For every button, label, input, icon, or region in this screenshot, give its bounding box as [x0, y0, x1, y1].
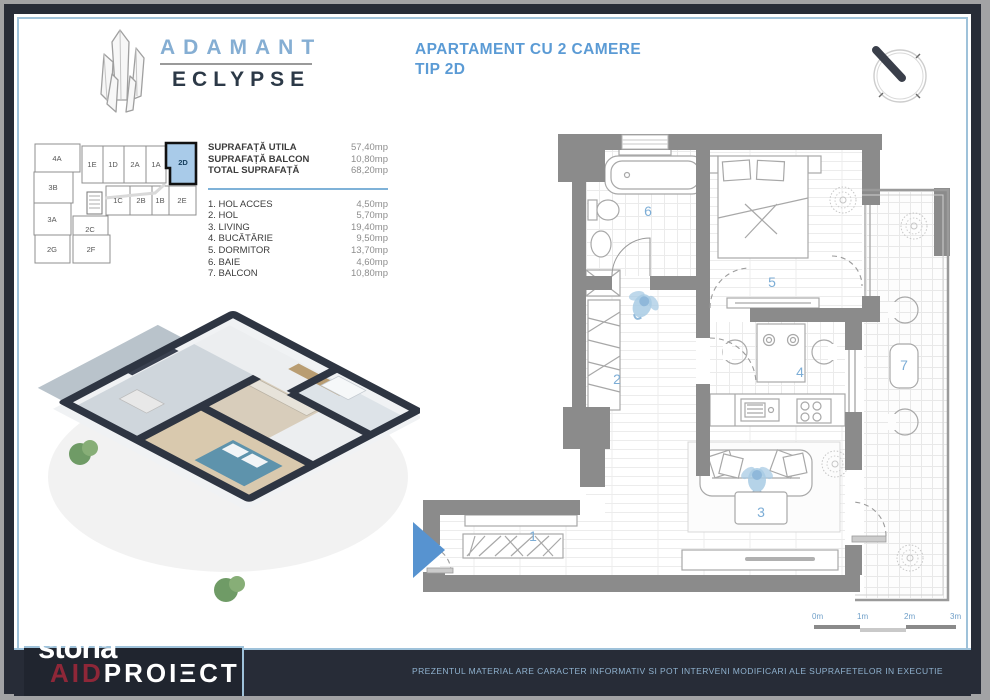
unit-label: 3A: [47, 215, 56, 224]
sofa-pillow: [783, 453, 807, 477]
room-number-hol-acces: 1: [529, 528, 537, 544]
page-title: APARTAMENT CU 2 CAMERE TIP 2D: [415, 40, 641, 80]
unit-label: 2B: [136, 196, 145, 205]
room-label: 4. BUCĂTĂRIE: [208, 233, 273, 245]
room-number-bucatarie: 4: [796, 364, 804, 380]
title-line1: APARTAMENT CU 2 CAMERE: [415, 40, 641, 60]
table-row: 4. BUCĂTĂRIE9,50mp: [208, 233, 388, 245]
table-row: 1. HOL ACCES4,50mp: [208, 199, 388, 211]
unit-label: 1A: [151, 160, 160, 169]
disclaimer-text: PREZENTUL MATERIAL ARE CARACTER INFORMAT…: [412, 666, 943, 676]
scale-label: 2m: [904, 612, 915, 621]
table-row: SUPRAFAȚĂ BALCON10,80mp: [208, 154, 388, 166]
area-label: SUPRAFAȚĂ UTILA: [208, 142, 297, 154]
area-label: SUPRAFAȚĂ BALCON: [208, 154, 309, 166]
unit-label: 1B: [155, 196, 164, 205]
unit-label: 3B: [48, 183, 57, 192]
scale-label: 0m: [812, 612, 823, 621]
room-value: 19,40mp: [351, 222, 388, 234]
scale-bar: 0m 1m 2m 3m: [812, 612, 962, 638]
unit-label: 2E: [177, 196, 186, 205]
north-compass-icon: [866, 38, 932, 108]
room-label: 1. HOL ACCES: [208, 199, 273, 211]
room-number-dormitor: 5: [768, 274, 776, 290]
unit-label: 1C: [113, 196, 123, 205]
areas-table: SUPRAFAȚĂ UTILA57,40mp SUPRAFAȚĂ BALCON1…: [208, 142, 388, 280]
area-value: 10,80mp: [351, 154, 388, 166]
room-value: 5,70mp: [356, 210, 388, 222]
room-value: 9,50mp: [356, 233, 388, 245]
unit-label-highlighted: 2D: [178, 158, 188, 167]
room-value: 4,50mp: [356, 199, 388, 211]
room-number-hol: 2: [613, 371, 621, 387]
wardrobe: [588, 300, 620, 410]
brand-divider: [160, 63, 312, 65]
table-row: TOTAL SUPRAFAȚĂ68,20mp: [208, 165, 388, 177]
logo-proiect-text: PROIΞCT: [104, 658, 240, 688]
room-label: 2. HOL: [208, 210, 238, 222]
sink: [591, 231, 611, 257]
pillow: [756, 160, 784, 180]
sofa-pillow: [719, 454, 743, 478]
storia-watermark: storia: [38, 630, 116, 666]
brand-block: ADAMANT ECLYPSE: [160, 36, 322, 92]
footer-bar: AIDPROIΞCT storia PREZENTUL MATERIAL ARE…: [14, 648, 971, 696]
scale-label: 3m: [950, 612, 961, 621]
area-label: TOTAL SUPRAFAȚĂ: [208, 165, 299, 177]
room-value: 4,60mp: [356, 257, 388, 269]
area-value: 57,40mp: [351, 142, 388, 154]
room-number-balcon: 7: [900, 357, 908, 373]
unit-label: 2F: [87, 245, 96, 254]
room-number-living: 3: [757, 504, 765, 520]
table-row: 2. HOL5,70mp: [208, 210, 388, 222]
table-row: SUPRAFAȚĂ UTILA57,40mp: [208, 142, 388, 154]
aidproiect-logo-box: AIDPROIΞCT storia: [24, 646, 244, 696]
brand-name: ADAMANT: [160, 36, 322, 60]
threshold-cabinet: [465, 515, 577, 526]
floor-plan-2d: 1 2 3 4 5 6 7: [405, 126, 980, 642]
pillow: [722, 160, 750, 181]
unit-label: 2G: [47, 245, 57, 254]
window: [622, 135, 668, 149]
table-row: 3. LIVING19,40mp: [208, 222, 388, 234]
room-number-baie: 6: [644, 203, 652, 219]
table-row: 6. BAIE4,60mp: [208, 257, 388, 269]
scale-label: 1m: [857, 612, 868, 621]
brand-subname: ECLYPSE: [160, 68, 322, 92]
toilet: [588, 200, 597, 220]
tv: [745, 557, 815, 561]
nightstand: [808, 156, 821, 173]
room-label: 6. BAIE: [208, 257, 240, 269]
room-value: 13,70mp: [351, 245, 388, 257]
unit-label: 2A: [130, 160, 139, 169]
table-separator: [208, 188, 388, 190]
floor-key-plan: 4A 1E 1D 2A 1A 2D 3B 1C 2B 1B 2E 3A 2C 2…: [27, 140, 205, 268]
room-label: 3. LIVING: [208, 222, 250, 234]
title-line2: TIP 2D: [415, 60, 641, 80]
unit-label: 2C: [85, 225, 95, 234]
crystal-logo: [92, 26, 154, 118]
unit-label: 1E: [87, 160, 96, 169]
area-value: 68,20mp: [351, 165, 388, 177]
unit-label: 1D: [108, 160, 118, 169]
room-label: 5. DORMITOR: [208, 245, 270, 257]
table-row: 5. DORMITOR13,70mp: [208, 245, 388, 257]
isometric-3d-view: [28, 272, 420, 622]
unit-label: 4A: [52, 154, 61, 163]
